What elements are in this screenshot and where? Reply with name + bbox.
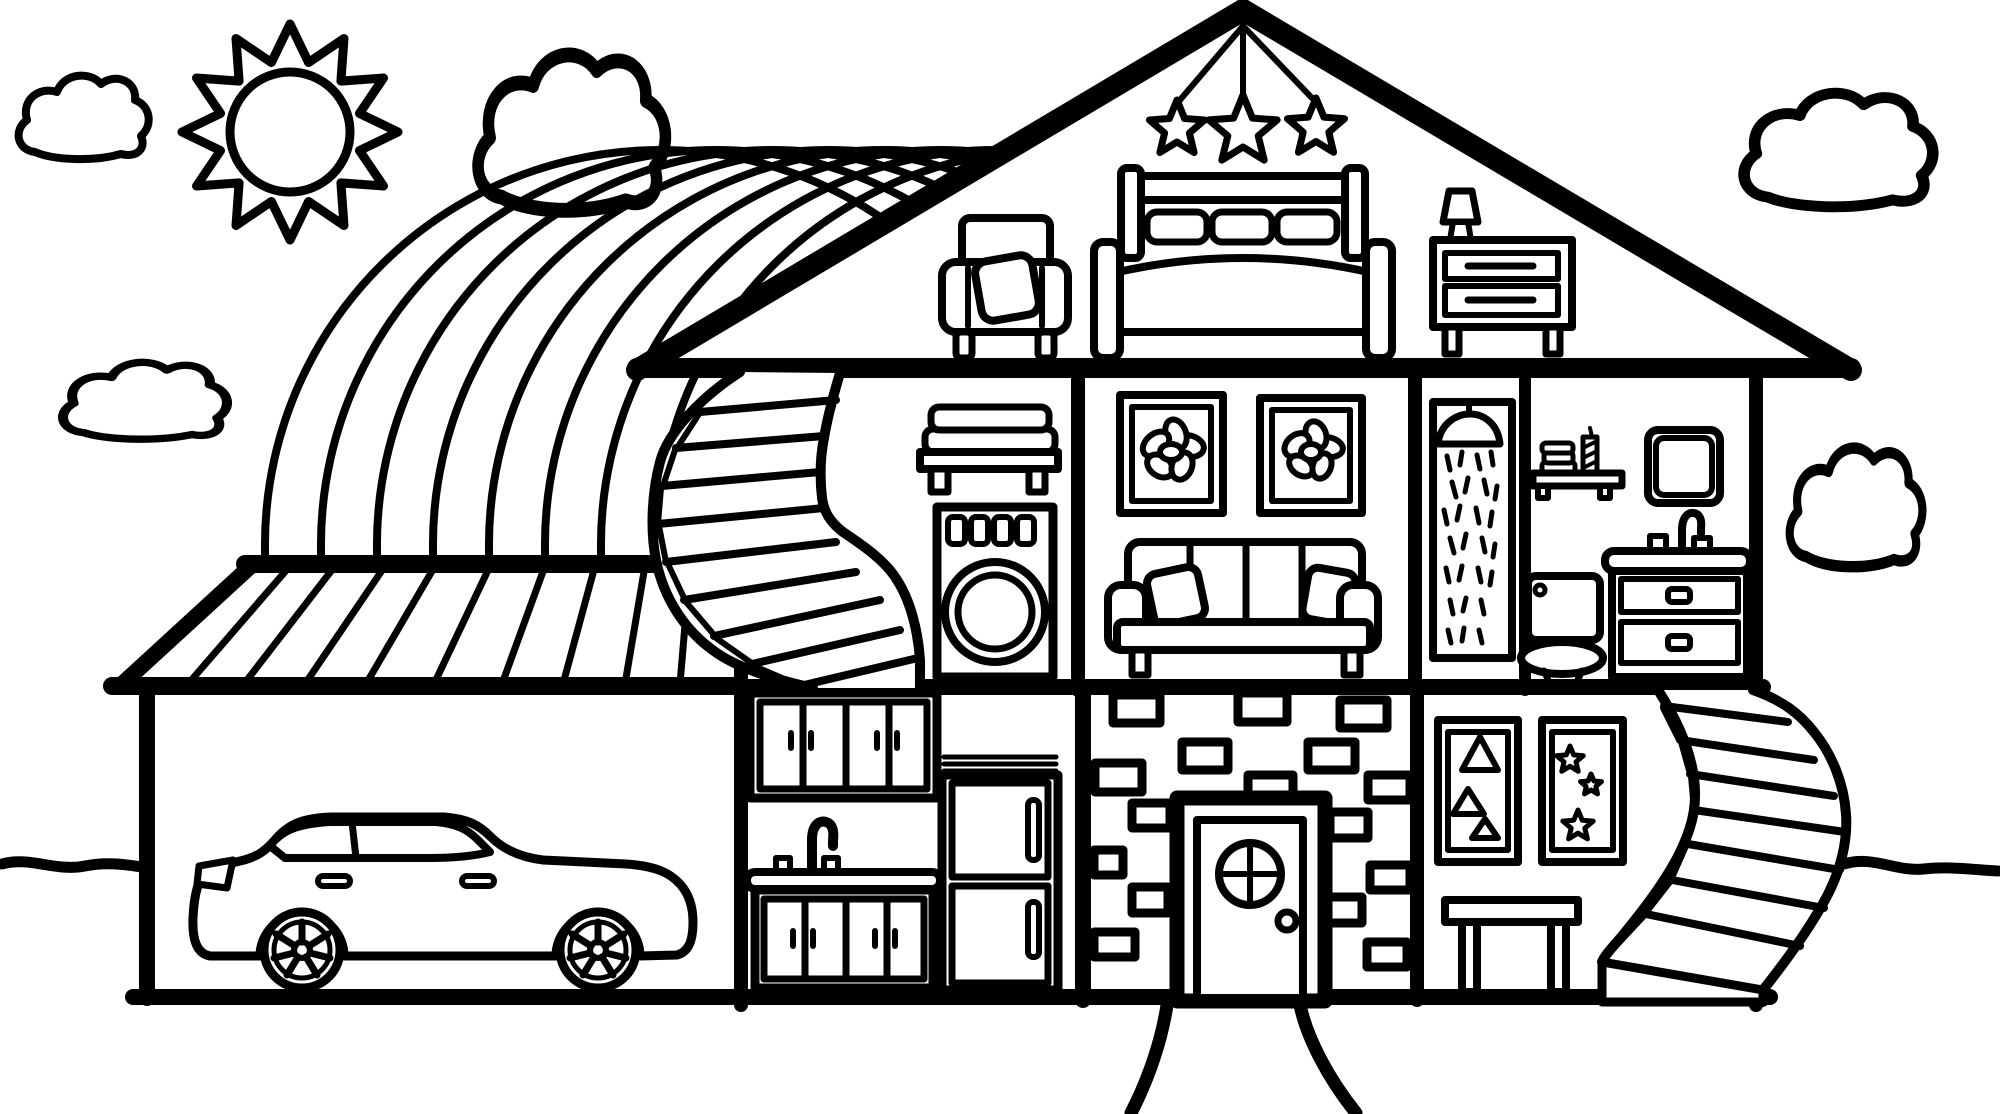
mirror-cabinet <box>1648 430 1720 503</box>
garage-roof <box>112 564 748 686</box>
ground-line-left <box>2 862 142 868</box>
sun-disc <box>230 72 350 192</box>
bed-pillow <box>1147 212 1207 242</box>
refrigerator <box>942 757 1058 990</box>
front-door <box>1177 798 1325 1001</box>
flower-picture-left <box>1120 395 1223 513</box>
towel <box>1542 443 1573 453</box>
cloud-top-center-icon <box>478 55 665 210</box>
car-door-handle <box>462 876 494 886</box>
car <box>193 817 693 988</box>
lower-cabinets <box>755 890 933 988</box>
car-door-handle <box>318 876 350 886</box>
car-taillight <box>197 860 233 888</box>
garage <box>193 817 693 988</box>
bed-mattress <box>1118 258 1368 332</box>
towel <box>931 407 1049 430</box>
sofa-pillow <box>1145 565 1207 627</box>
flower-picture-right <box>1260 398 1362 513</box>
upper-cabinets <box>750 693 937 798</box>
cloud-left-icon <box>63 362 227 439</box>
star-picture <box>1542 720 1623 862</box>
door-knob <box>1278 912 1296 930</box>
front-path <box>1131 1005 1356 1113</box>
ground-line-right <box>1844 861 1998 871</box>
toilet-seat <box>1521 642 1603 674</box>
car-wheel <box>264 912 340 988</box>
dollhouse-illustration <box>0 0 2000 1114</box>
toilet <box>1521 576 1603 689</box>
armchair-pillow <box>973 253 1041 322</box>
bed-pillow <box>1277 212 1337 242</box>
car-wheel <box>560 912 636 988</box>
cloud-top-right-icon <box>1744 93 1933 207</box>
car-windows <box>270 822 490 858</box>
bed-pillow <box>1212 212 1272 242</box>
shower <box>1433 402 1512 658</box>
cloud-right-icon <box>1790 448 1923 567</box>
cloud-top-left-icon <box>19 76 149 160</box>
sun <box>182 24 398 240</box>
bed-headboard <box>1141 176 1345 200</box>
washing-machine <box>937 507 1053 677</box>
lamp-icon <box>1443 191 1478 222</box>
triangle-picture <box>1438 720 1518 862</box>
coloring-page <box>0 0 2000 1114</box>
